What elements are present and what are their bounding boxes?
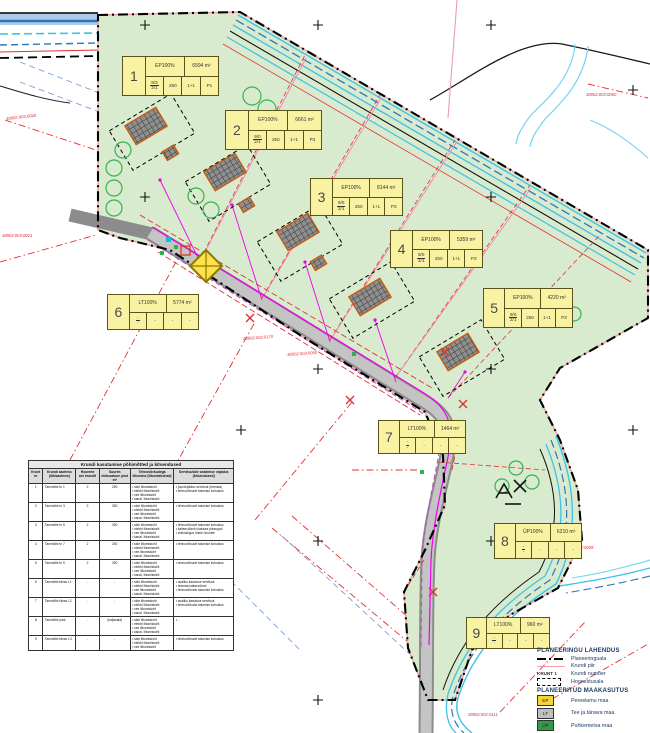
table-row: 8Tammiõie park-(haljasala)• side liitumi…: [29, 617, 234, 636]
plot-border-line-icon: [537, 666, 565, 667]
table-header: Hoonete arv krundil: [76, 469, 99, 484]
landuse-swatch: LT: [537, 708, 554, 719]
max-footprint: 250: [267, 131, 285, 149]
cadastral-number: 38902:003:0060: [586, 92, 616, 97]
plot-area: 6210 m²: [551, 524, 581, 541]
legend-item: Krundi piir: [537, 663, 649, 669]
table-header: Tehnovõrkudega liitumine (liitumiskohad): [130, 469, 174, 484]
legend-item: Planeeringuala: [537, 656, 649, 662]
landuse-swatch: EP: [537, 695, 554, 706]
plot-area: 6661 m²: [288, 111, 321, 130]
legend-landuse-item: ÜPPuhkemetsa maa: [537, 720, 649, 731]
table-header: Servituutide seadmise vajadus (kitsendus…: [174, 469, 234, 484]
cadastral-number: 38902:003:0021: [2, 233, 32, 238]
plot-number: 7: [379, 421, 400, 453]
storeys-fraction: 9/02/1: [253, 135, 261, 145]
max-footprint: 250: [350, 198, 368, 215]
parking-code: P3: [556, 309, 572, 327]
plot-area: 960 m²: [521, 618, 549, 633]
legend-heading-landuse: PLANEERITUD MAAKASUTUS: [537, 688, 649, 694]
table-row: 7Tammiõie tänav L2--• side liitumiskoht•…: [29, 598, 234, 617]
landuse-code: EP100%: [333, 179, 370, 197]
plot-number-sample: KRUNT 1: [537, 671, 557, 676]
building-count: 1+1: [285, 131, 303, 149]
table-row: 5Tammiõie tn 92250• side liitumiskoht• e…: [29, 560, 234, 579]
storeys-fraction: 9/02/1: [417, 253, 425, 263]
storeys-fraction: 9/02/1: [509, 313, 517, 323]
storeys-fraction: --: [522, 545, 526, 555]
building-count: 1+1: [368, 198, 386, 215]
table-header: Krunt nr: [29, 469, 43, 484]
table-row: 6Tammiõie tänav L1--• side liitumiskoht•…: [29, 579, 234, 598]
building-count: 1+1: [448, 250, 466, 267]
table-row: 3Tammiõie tn 52250• side liitumiskoht• e…: [29, 522, 234, 541]
table-header: Krundi aadress (lähiaadress): [43, 469, 76, 484]
legend-item: Hoonestusala: [537, 678, 649, 686]
landuse-code: LT100%: [400, 421, 435, 437]
plot-number: 1: [123, 57, 146, 95]
max-footprint: -: [416, 438, 433, 453]
plot-label-4: 4EP100%5359 m²9/02/12501+1P3: [390, 230, 483, 268]
building-count: -: [549, 542, 566, 558]
plot-number: 5: [484, 289, 505, 327]
parking-code: -: [182, 313, 198, 329]
landuse-code: EP100%: [413, 231, 450, 249]
table-header: Suurim ehitusalune pind m²: [99, 469, 130, 484]
legend-landuse-item: EPPereelamu maa: [537, 695, 649, 706]
boundary-line-icon: [537, 658, 565, 660]
legend: PLANEERINGU LAHENDUS PlaneeringualaKrund…: [537, 647, 649, 733]
detail-plan-sheet: { "map": { "title_hint": "Detailplaneeri…: [0, 0, 650, 733]
plot-area: 1464 m²: [435, 421, 465, 437]
landuse-code: EP100%: [146, 57, 185, 76]
storeys-fraction: --: [492, 636, 496, 646]
max-footprint: -: [503, 634, 519, 648]
plot-number: 6: [108, 295, 130, 329]
table-row: 4Tammiõie tn 72250• side liitumiskoht• e…: [29, 541, 234, 560]
table-title: Krundi kasutamise põhimõtted ja kitsendu…: [29, 461, 234, 469]
legend-item: KRUNT 1Krundi number: [537, 671, 649, 677]
plot-number: 4: [391, 231, 413, 267]
landuse-code: LT100%: [487, 618, 521, 633]
table-row: 9Tammiõie tänav L3--• side liitumiskoht•…: [29, 636, 234, 651]
plot-label-5: 5EP100%4220 m²9/02/12501+1P3: [483, 288, 573, 328]
plot-area: 4220 m²: [541, 289, 572, 308]
max-footprint: -: [147, 313, 164, 329]
plot-number: 3: [311, 179, 333, 215]
building-count: 1+1: [539, 309, 556, 327]
landuse-code: ÜP100%: [516, 524, 551, 541]
plot-area: 8144 m²: [370, 179, 402, 197]
plot-area: 5774 m²: [167, 295, 198, 312]
plot-area: 6594 m²: [185, 57, 218, 76]
landuse-code: LT100%: [130, 295, 167, 312]
plot-label-1: 1EP100%6594 m²9/32/12501+1P1: [122, 56, 219, 96]
cadastral-number: 38902:002:0111: [468, 712, 498, 717]
parking-code: -: [534, 634, 549, 648]
legend-heading-solution: PLANEERINGU LAHENDUS: [537, 648, 649, 654]
building-envelope-icon: [537, 678, 561, 686]
max-footprint: -: [532, 542, 549, 558]
table-row: 1Tammiõie tn 12250• side liitumiskoht• e…: [29, 484, 234, 503]
plot-label-3: 3EP100%8144 m²9/02/12501+1P3: [310, 178, 403, 216]
plot-label-8: 8ÜP100%6210 m²-----: [494, 523, 582, 559]
parking-code: -: [565, 542, 581, 558]
max-footprint: 250: [164, 77, 182, 95]
plot-number: 9: [467, 618, 487, 648]
storeys-fraction: --: [406, 440, 410, 450]
storeys-fraction: 9/02/1: [337, 201, 345, 211]
parking-code: -: [449, 438, 465, 453]
storeys-fraction: --: [136, 316, 140, 326]
landuse-code: EP100%: [249, 111, 288, 130]
plot-label-7: 7LT100%1464 m²-----: [378, 420, 466, 454]
landuse-swatch: ÜP: [537, 720, 554, 731]
max-footprint: 250: [430, 250, 448, 267]
building-count: -: [433, 438, 450, 453]
landuse-code: EP100%: [505, 289, 541, 308]
parking-code: P3: [465, 250, 482, 267]
context-water-top-left: [0, 13, 98, 58]
plot-number: 8: [495, 524, 516, 558]
plot-label-9: 9LT100%960 m²-----: [466, 617, 550, 649]
building-count: -: [518, 634, 534, 648]
parking-code: P3: [304, 131, 321, 149]
plot-number: 2: [226, 111, 249, 149]
building-count: -: [164, 313, 181, 329]
plot-label-2: 2EP100%6661 m²9/02/12501+1P3: [225, 110, 322, 150]
max-footprint: 250: [522, 309, 539, 327]
building-rights-table: Krundi kasutamise põhimõtted ja kitsendu…: [28, 460, 234, 651]
storeys-fraction: 9/32/1: [150, 81, 158, 91]
parking-code: P3: [385, 198, 402, 215]
building-count: 1+1: [182, 77, 200, 95]
table-row: 2Tammiõie tn 32250• side liitumiskoht• e…: [29, 503, 234, 522]
plot-label-6: 6LT100%5774 m²-----: [107, 294, 199, 330]
plot-area: 5359 m²: [450, 231, 482, 249]
legend-landuse-item: LTTee ja tänava maa: [537, 708, 649, 719]
parking-code: P1: [201, 77, 218, 95]
